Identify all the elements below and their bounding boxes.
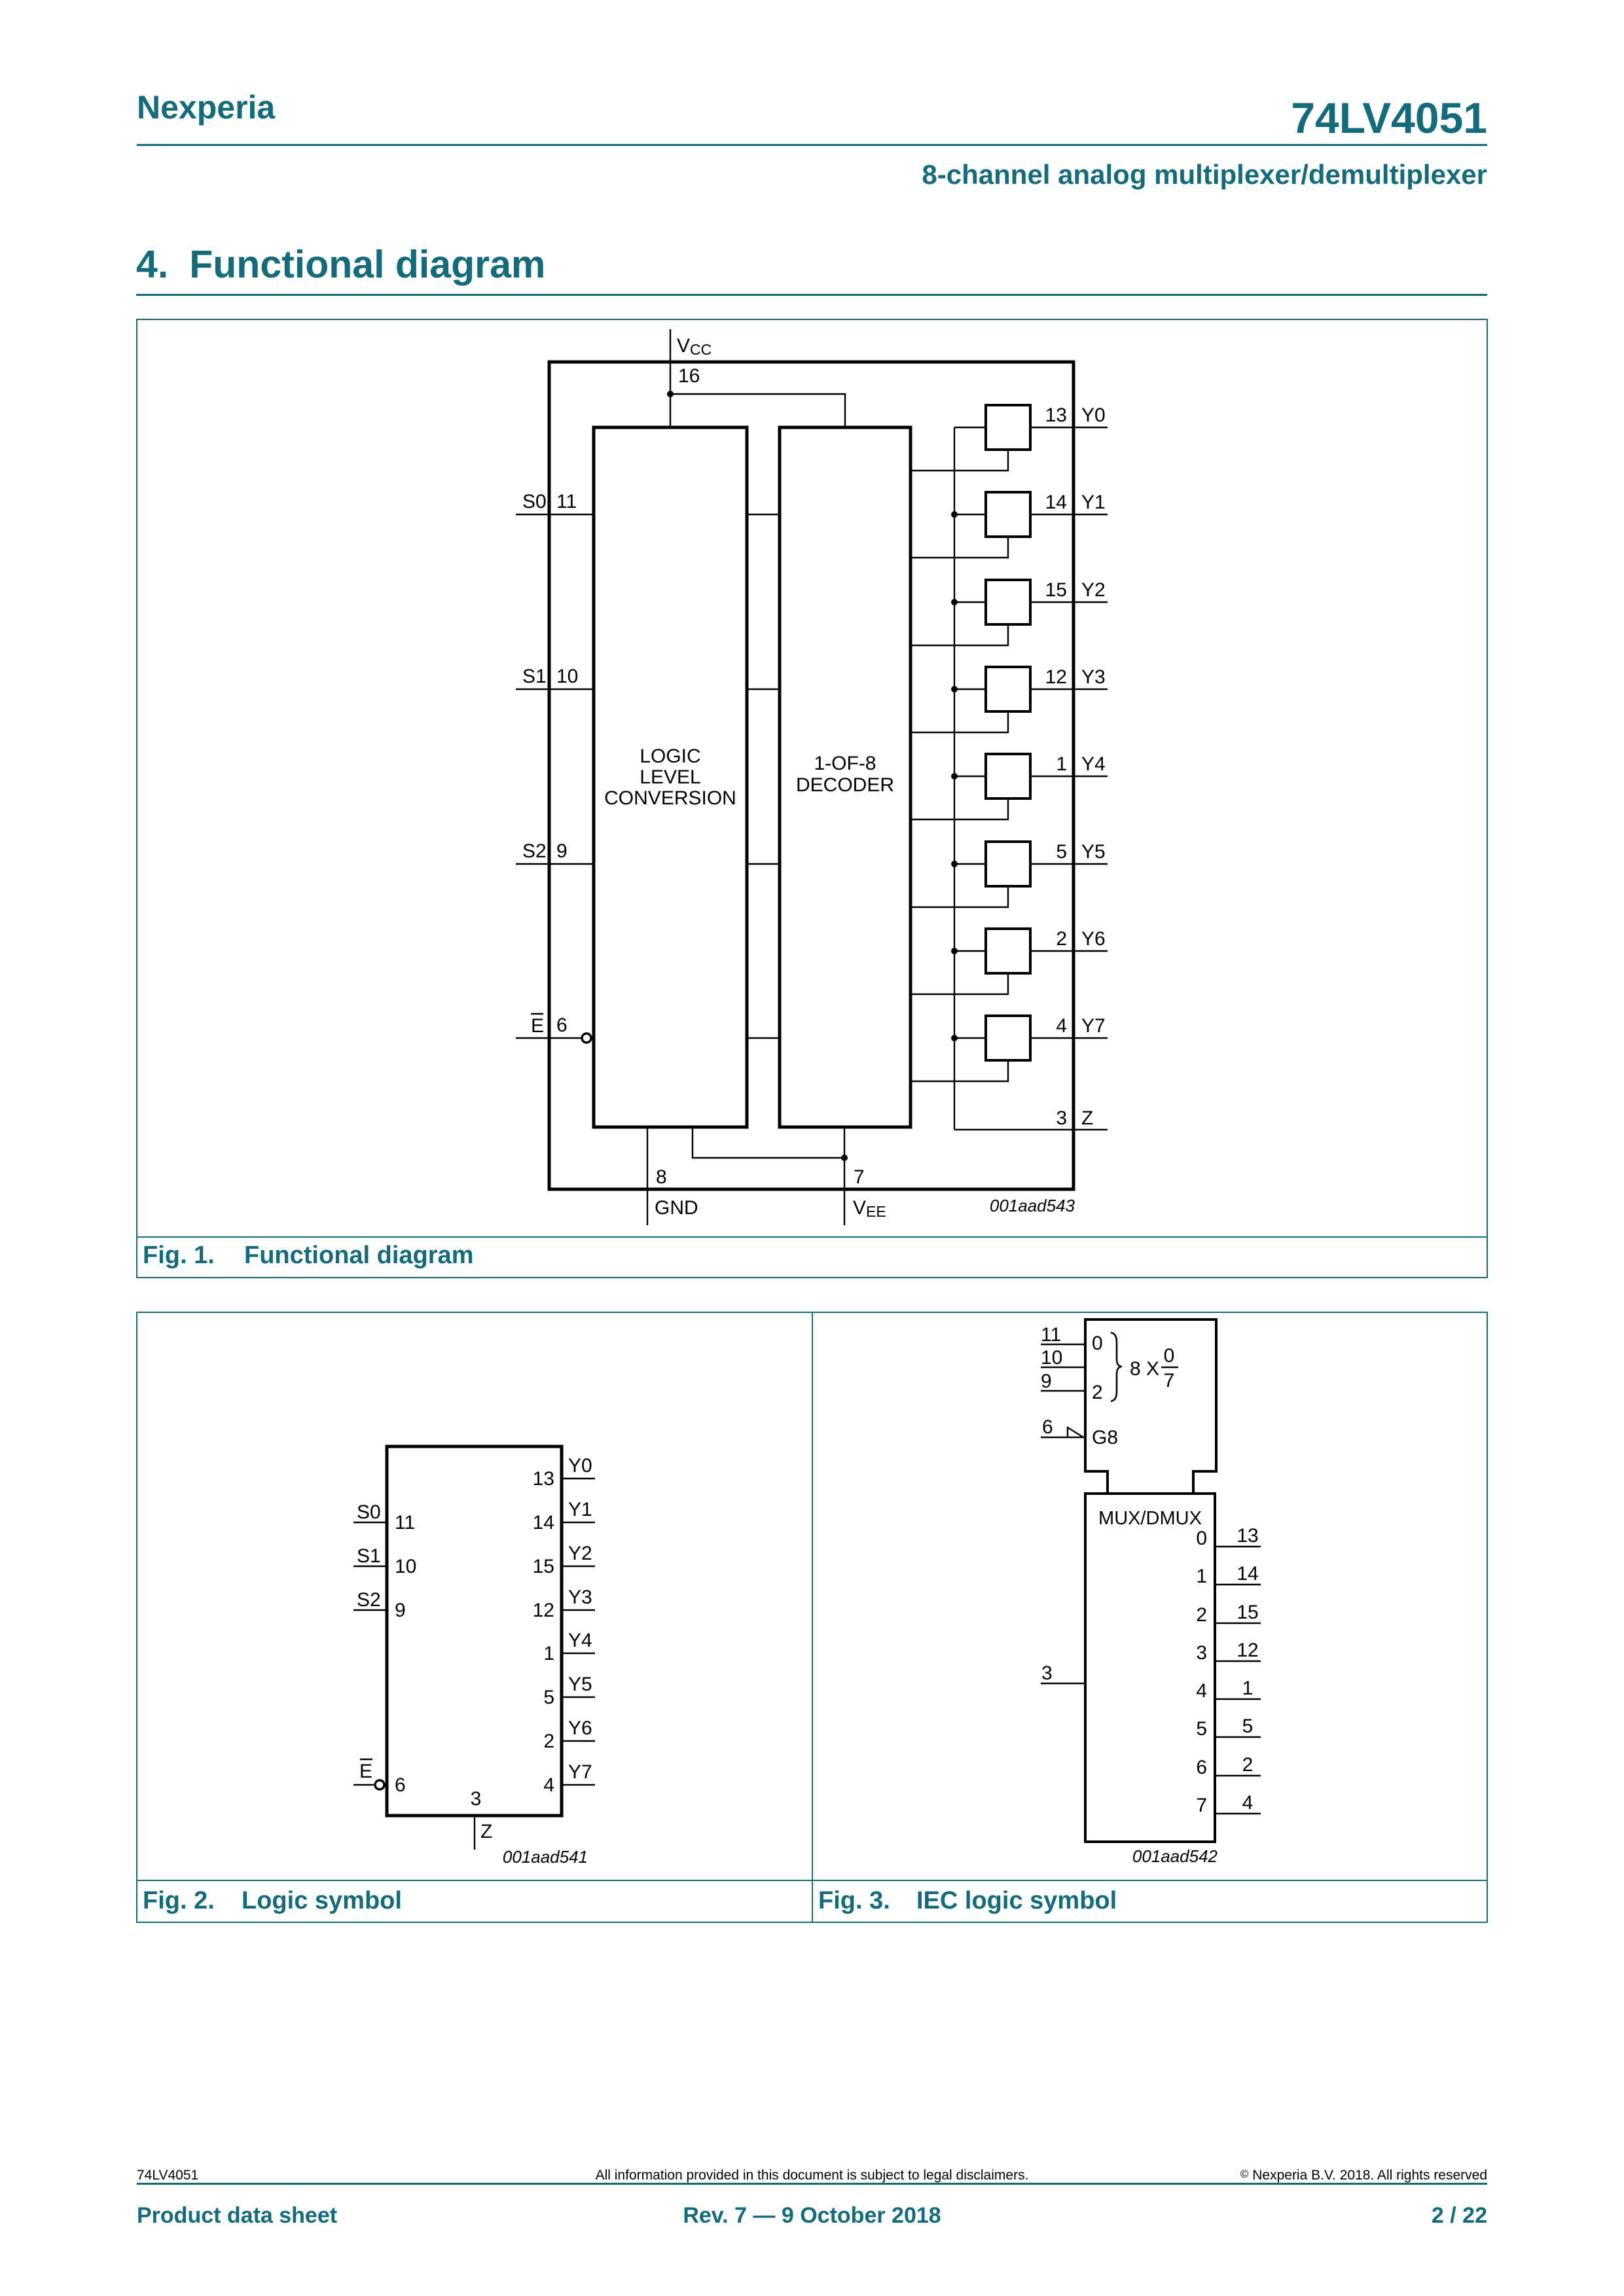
- svg-text:S0: S0: [357, 1501, 381, 1523]
- svg-text:6: 6: [1042, 1416, 1053, 1438]
- svg-text:13: 13: [1045, 404, 1067, 426]
- svg-text:Y5: Y5: [1081, 841, 1106, 863]
- svg-text:11: 11: [1041, 1324, 1061, 1346]
- svg-text:8 X: 8 X: [1130, 1358, 1159, 1380]
- svg-text:12: 12: [1045, 666, 1067, 688]
- svg-text:10: 10: [1041, 1347, 1062, 1369]
- svg-text:Y7: Y7: [568, 1761, 592, 1783]
- svg-text:1: 1: [1242, 1677, 1254, 1699]
- svg-text:Y2: Y2: [568, 1543, 592, 1564]
- svg-text:14: 14: [533, 1512, 554, 1534]
- svg-text:001aad543: 001aad543: [990, 1196, 1075, 1215]
- svg-text:Y3: Y3: [1081, 666, 1106, 688]
- svg-text:VEE: VEE: [853, 1197, 886, 1220]
- svg-text:MUX/DMUX: MUX/DMUX: [1098, 1508, 1202, 1529]
- svg-text:3: 3: [1196, 1642, 1207, 1664]
- svg-text:3: 3: [1056, 1107, 1067, 1129]
- svg-text:10: 10: [556, 666, 578, 687]
- svg-text:Y6: Y6: [1081, 928, 1106, 950]
- svg-text:5: 5: [1196, 1718, 1207, 1740]
- svg-text:S1: S1: [357, 1545, 381, 1567]
- svg-text:4: 4: [1056, 1015, 1067, 1037]
- svg-text:S1: S1: [522, 666, 547, 687]
- svg-text:7: 7: [854, 1166, 865, 1188]
- svg-text:14: 14: [1236, 1563, 1258, 1585]
- svg-text:5: 5: [1056, 841, 1067, 863]
- svg-text:E: E: [531, 1015, 544, 1037]
- svg-text:001aad542: 001aad542: [1132, 1846, 1218, 1866]
- svg-text:15: 15: [533, 1556, 554, 1577]
- svg-text:Y0: Y0: [568, 1455, 592, 1477]
- svg-text:6: 6: [1196, 1757, 1207, 1778]
- svg-text:Y4: Y4: [1081, 753, 1106, 775]
- svg-text:15: 15: [1236, 1602, 1258, 1623]
- svg-text:Y2: Y2: [1081, 579, 1106, 601]
- svg-text:10: 10: [395, 1556, 416, 1577]
- svg-text:2: 2: [1056, 928, 1067, 950]
- svg-text:0: 0: [1196, 1528, 1207, 1549]
- svg-text:3: 3: [1041, 1662, 1053, 1684]
- svg-text:Y1: Y1: [1081, 492, 1106, 513]
- svg-text:6: 6: [556, 1014, 568, 1036]
- svg-text:7: 7: [1164, 1370, 1175, 1391]
- svg-text:13: 13: [533, 1468, 554, 1490]
- svg-text:5: 5: [543, 1687, 554, 1708]
- svg-text:2: 2: [1092, 1382, 1103, 1403]
- svg-text:DECODER: DECODER: [796, 774, 894, 796]
- svg-text:GND: GND: [655, 1197, 698, 1219]
- svg-text:7: 7: [1196, 1795, 1207, 1816]
- svg-text:2: 2: [1242, 1754, 1254, 1776]
- svg-text:0: 0: [1164, 1345, 1175, 1367]
- svg-text:001aad541: 001aad541: [503, 1847, 588, 1867]
- svg-text:15: 15: [1045, 579, 1067, 601]
- svg-text:4: 4: [1196, 1680, 1207, 1702]
- svg-text:4: 4: [1242, 1792, 1254, 1814]
- svg-text:4: 4: [543, 1774, 554, 1796]
- svg-text:E: E: [359, 1761, 372, 1782]
- svg-text:1: 1: [543, 1643, 554, 1664]
- svg-text:9: 9: [395, 1600, 406, 1621]
- svg-text:Y7: Y7: [1081, 1015, 1106, 1037]
- svg-text:Y6: Y6: [568, 1717, 592, 1739]
- svg-text:1: 1: [1196, 1566, 1207, 1587]
- svg-text:5: 5: [1242, 1715, 1254, 1737]
- svg-text:6: 6: [395, 1774, 406, 1796]
- svg-text:14: 14: [1045, 492, 1067, 513]
- svg-text:11: 11: [395, 1512, 415, 1534]
- svg-text:3: 3: [471, 1788, 482, 1810]
- svg-text:9: 9: [1041, 1371, 1052, 1392]
- svg-text:Y5: Y5: [568, 1674, 592, 1695]
- svg-text:Y0: Y0: [1081, 404, 1106, 426]
- svg-text:S2: S2: [522, 840, 547, 862]
- svg-text:CONVERSION: CONVERSION: [604, 787, 736, 809]
- svg-text:S2: S2: [357, 1589, 381, 1611]
- svg-text:2: 2: [543, 1731, 554, 1752]
- svg-text:Y1: Y1: [568, 1499, 592, 1520]
- svg-text:Y3: Y3: [568, 1587, 592, 1608]
- svg-text:LOGIC: LOGIC: [640, 745, 700, 767]
- svg-text:11: 11: [556, 491, 577, 512]
- svg-text:VCC: VCC: [677, 335, 712, 358]
- svg-text:S0: S0: [522, 491, 547, 512]
- svg-text:12: 12: [1236, 1640, 1258, 1661]
- svg-text:G8: G8: [1092, 1427, 1118, 1448]
- svg-text:1-OF-8: 1-OF-8: [814, 753, 876, 774]
- svg-text:9: 9: [556, 840, 568, 862]
- svg-text:Z: Z: [480, 1821, 492, 1842]
- svg-text:LEVEL: LEVEL: [640, 766, 700, 788]
- svg-text:Z: Z: [1081, 1107, 1093, 1129]
- svg-text:13: 13: [1236, 1525, 1258, 1547]
- svg-text:Y4: Y4: [568, 1630, 592, 1651]
- svg-text:16: 16: [678, 365, 700, 387]
- svg-text:0: 0: [1092, 1333, 1103, 1354]
- svg-text:2: 2: [1196, 1604, 1207, 1626]
- svg-text:12: 12: [533, 1600, 554, 1621]
- svg-text:1: 1: [1056, 753, 1067, 775]
- svg-text:8: 8: [656, 1166, 667, 1188]
